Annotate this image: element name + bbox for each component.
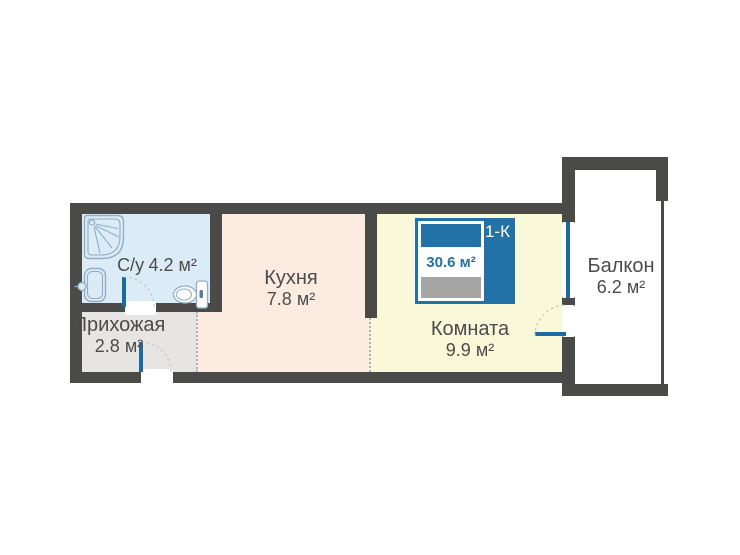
wall-kitchen-living xyxy=(365,214,377,318)
balcony-door-leaf xyxy=(535,332,566,336)
kitchen-label: Кухня 7.8 м² xyxy=(231,268,351,310)
unit-total-area: 30.6 м² xyxy=(421,247,481,277)
living-room-area: 9.9 м² xyxy=(410,340,530,361)
bed-headboard xyxy=(421,224,481,247)
wall-top xyxy=(70,203,575,214)
bathroom-door-opening xyxy=(125,301,156,315)
wall-bathroom-bottom-right xyxy=(155,303,222,312)
wall-balcony-bottom xyxy=(562,384,668,396)
unit-type-label: 1-К xyxy=(485,222,510,242)
bathroom-door-leaf xyxy=(122,277,126,307)
wall-balcony-top xyxy=(562,157,668,170)
unit-badge: 30.6 м² 1-К xyxy=(415,218,515,304)
kitchen-name: Кухня xyxy=(231,268,351,289)
bathroom-name: С/у xyxy=(117,255,144,275)
living-room-label: Комната 9.9 м² xyxy=(410,319,530,361)
kitchen-area: 7.8 м² xyxy=(231,289,351,310)
floor-plan: С/у 4.2 м² Прихожая 2.8 м² Кухня 7.8 м² … xyxy=(0,0,740,555)
hallway-kitchen-divider xyxy=(196,312,198,372)
entrance-door-opening xyxy=(141,369,173,387)
bed-icon: 30.6 м² xyxy=(418,221,484,301)
hallway-name: Прихожая xyxy=(59,315,179,336)
living-room-name: Комната xyxy=(410,319,530,340)
hallway-label: Прихожая 2.8 м² xyxy=(59,315,179,357)
balcony-name: Балкон xyxy=(561,256,681,277)
balcony-area: 6.2 м² xyxy=(561,277,681,298)
hallway-area: 2.8 м² xyxy=(59,336,179,357)
kitchen-living-divider xyxy=(369,318,371,372)
wall-balcony-right-corner xyxy=(656,157,668,201)
bathroom-area: 4.2 м² xyxy=(149,255,197,275)
bed-blanket xyxy=(421,277,481,298)
room-kitchen-floor-lower xyxy=(197,312,371,372)
bathroom-label: С/у 4.2 м² xyxy=(97,255,217,277)
balcony-label: Балкон 6.2 м² xyxy=(561,256,681,298)
wall-bathroom-bottom-left xyxy=(70,303,125,312)
